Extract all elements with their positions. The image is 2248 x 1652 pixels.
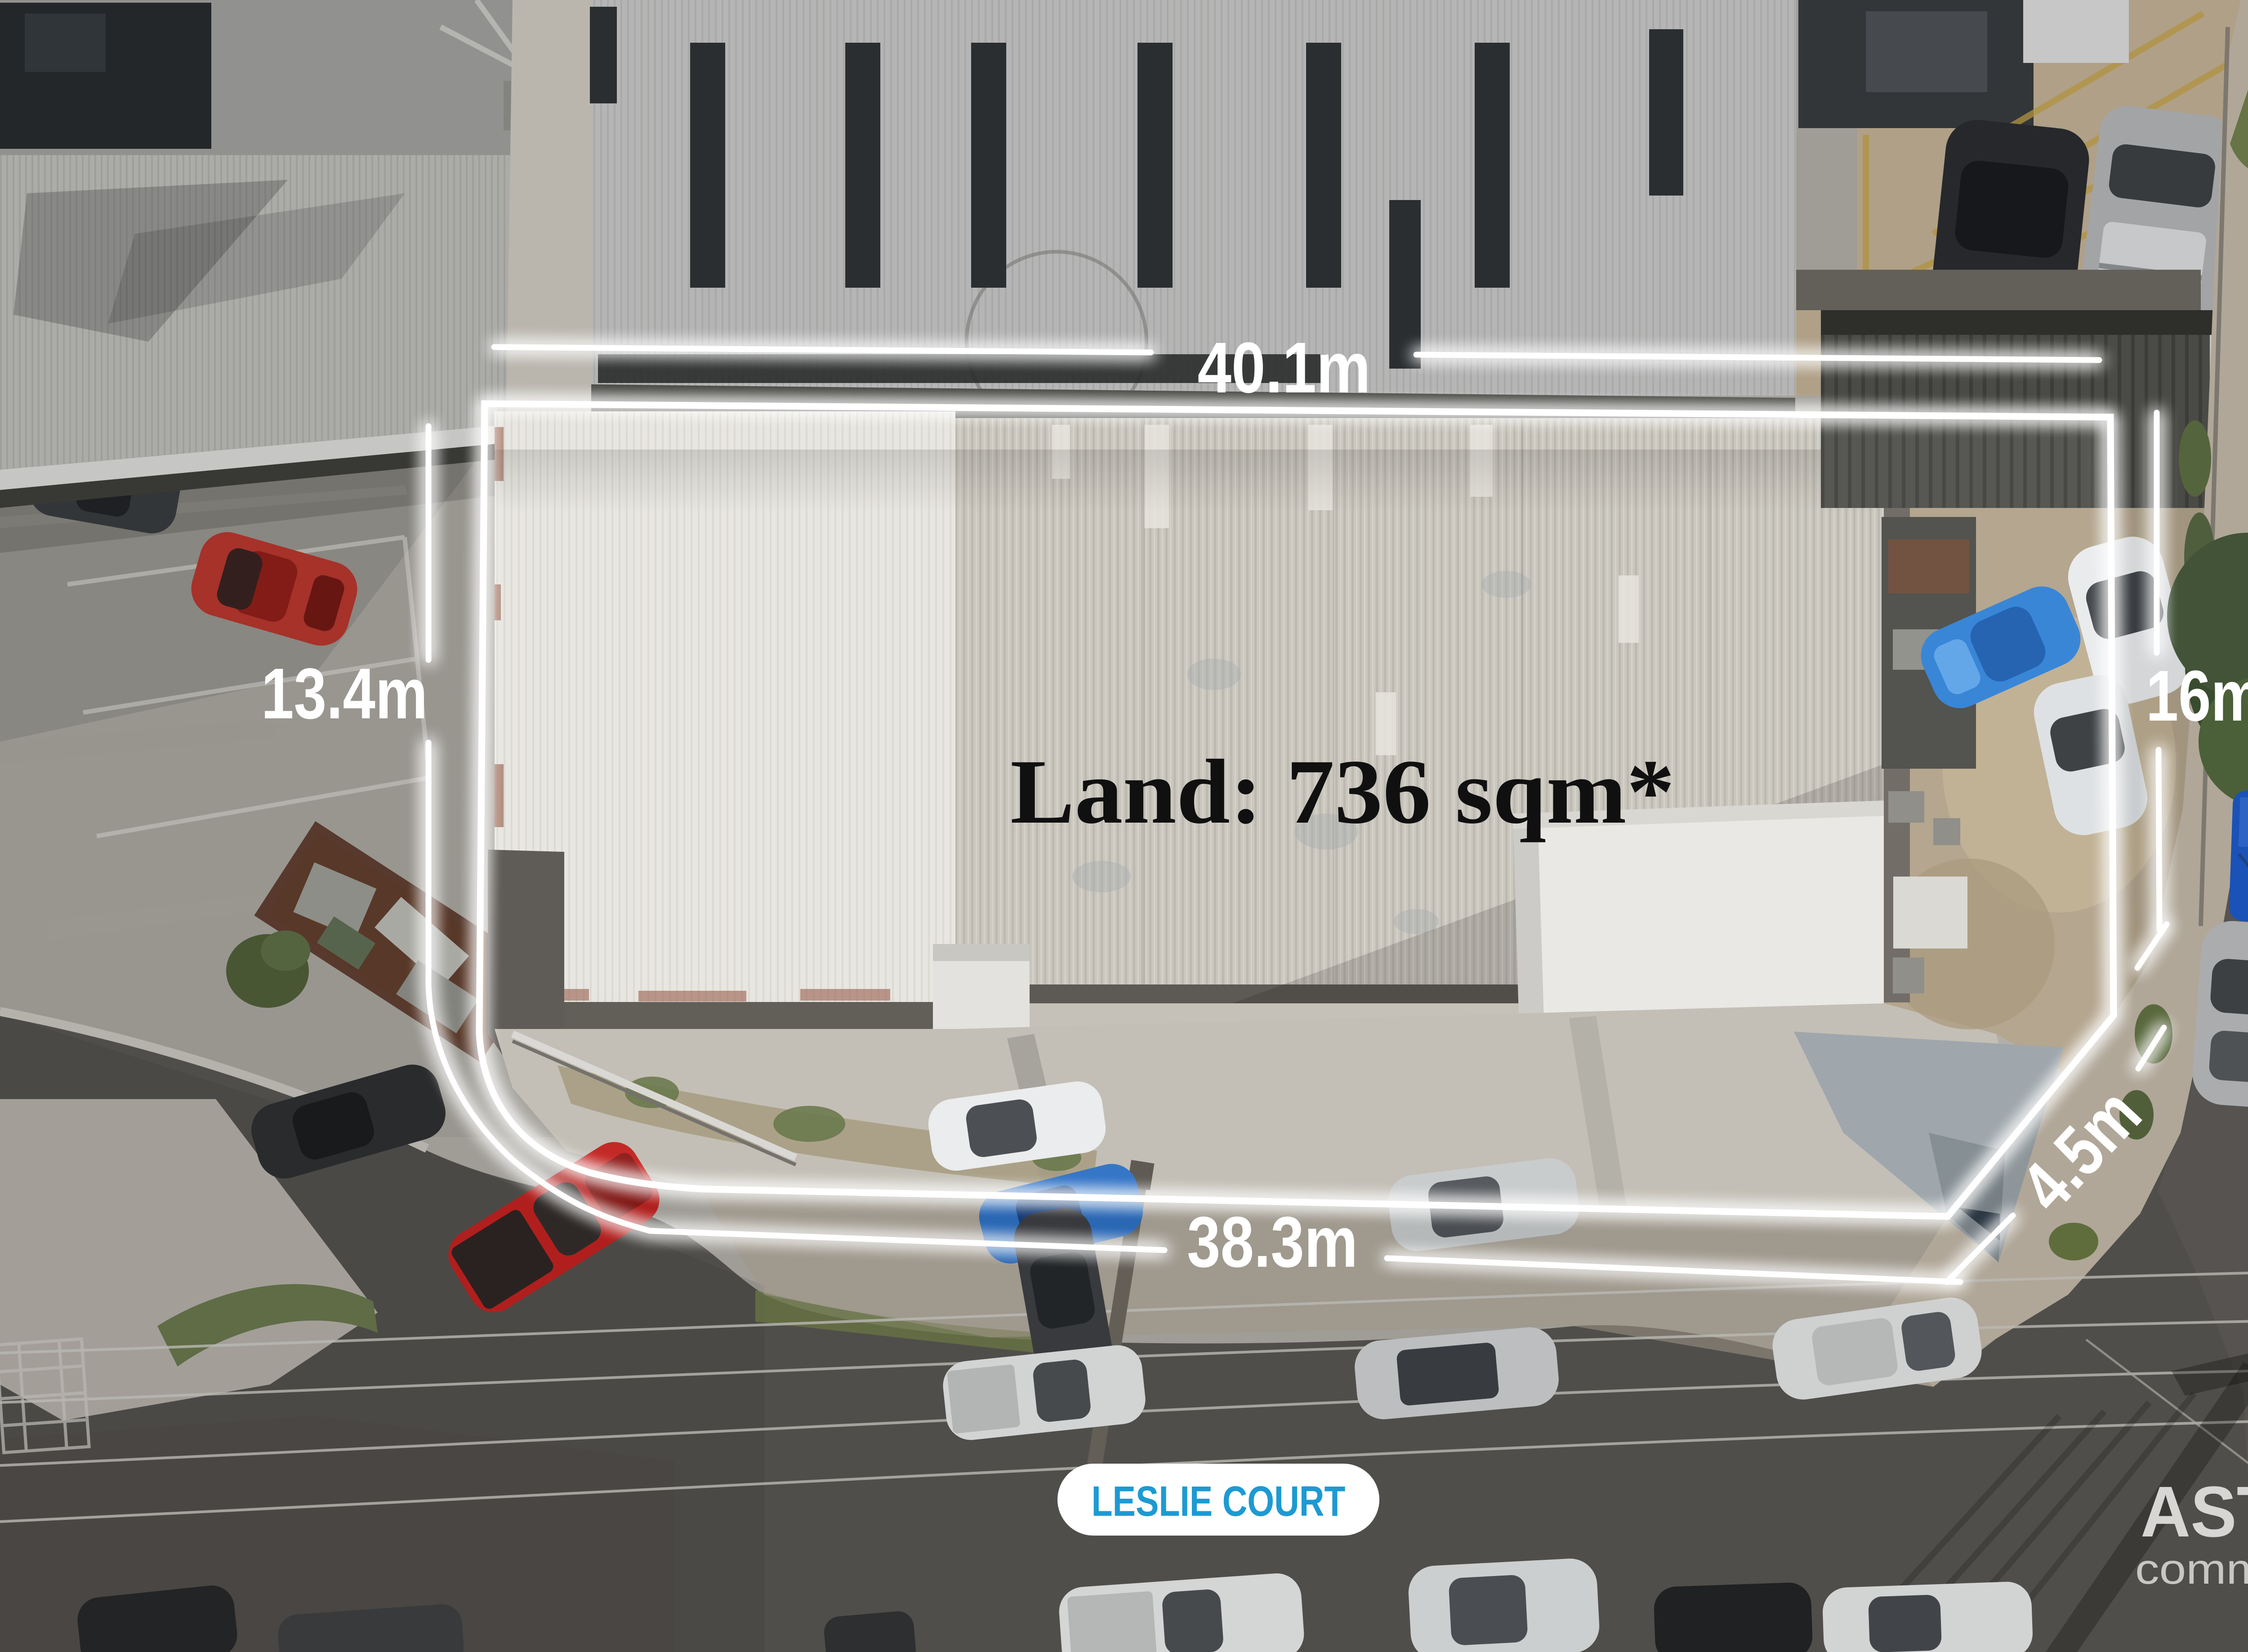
svg-text:38.3m: 38.3m xyxy=(1187,1202,1358,1282)
svg-text:commercial: commercial xyxy=(2135,1545,2248,1593)
svg-text:Land: 736 sqm*: Land: 736 sqm* xyxy=(1010,741,1675,843)
svg-text:ASTON: ASTON xyxy=(2141,1471,2248,1552)
svg-text:LESLIE COURT: LESLIE COURT xyxy=(1092,1478,1346,1525)
svg-text:40.1m: 40.1m xyxy=(1198,327,1371,408)
svg-text:13.4m: 13.4m xyxy=(261,653,428,734)
svg-text:16m: 16m xyxy=(2146,655,2248,736)
